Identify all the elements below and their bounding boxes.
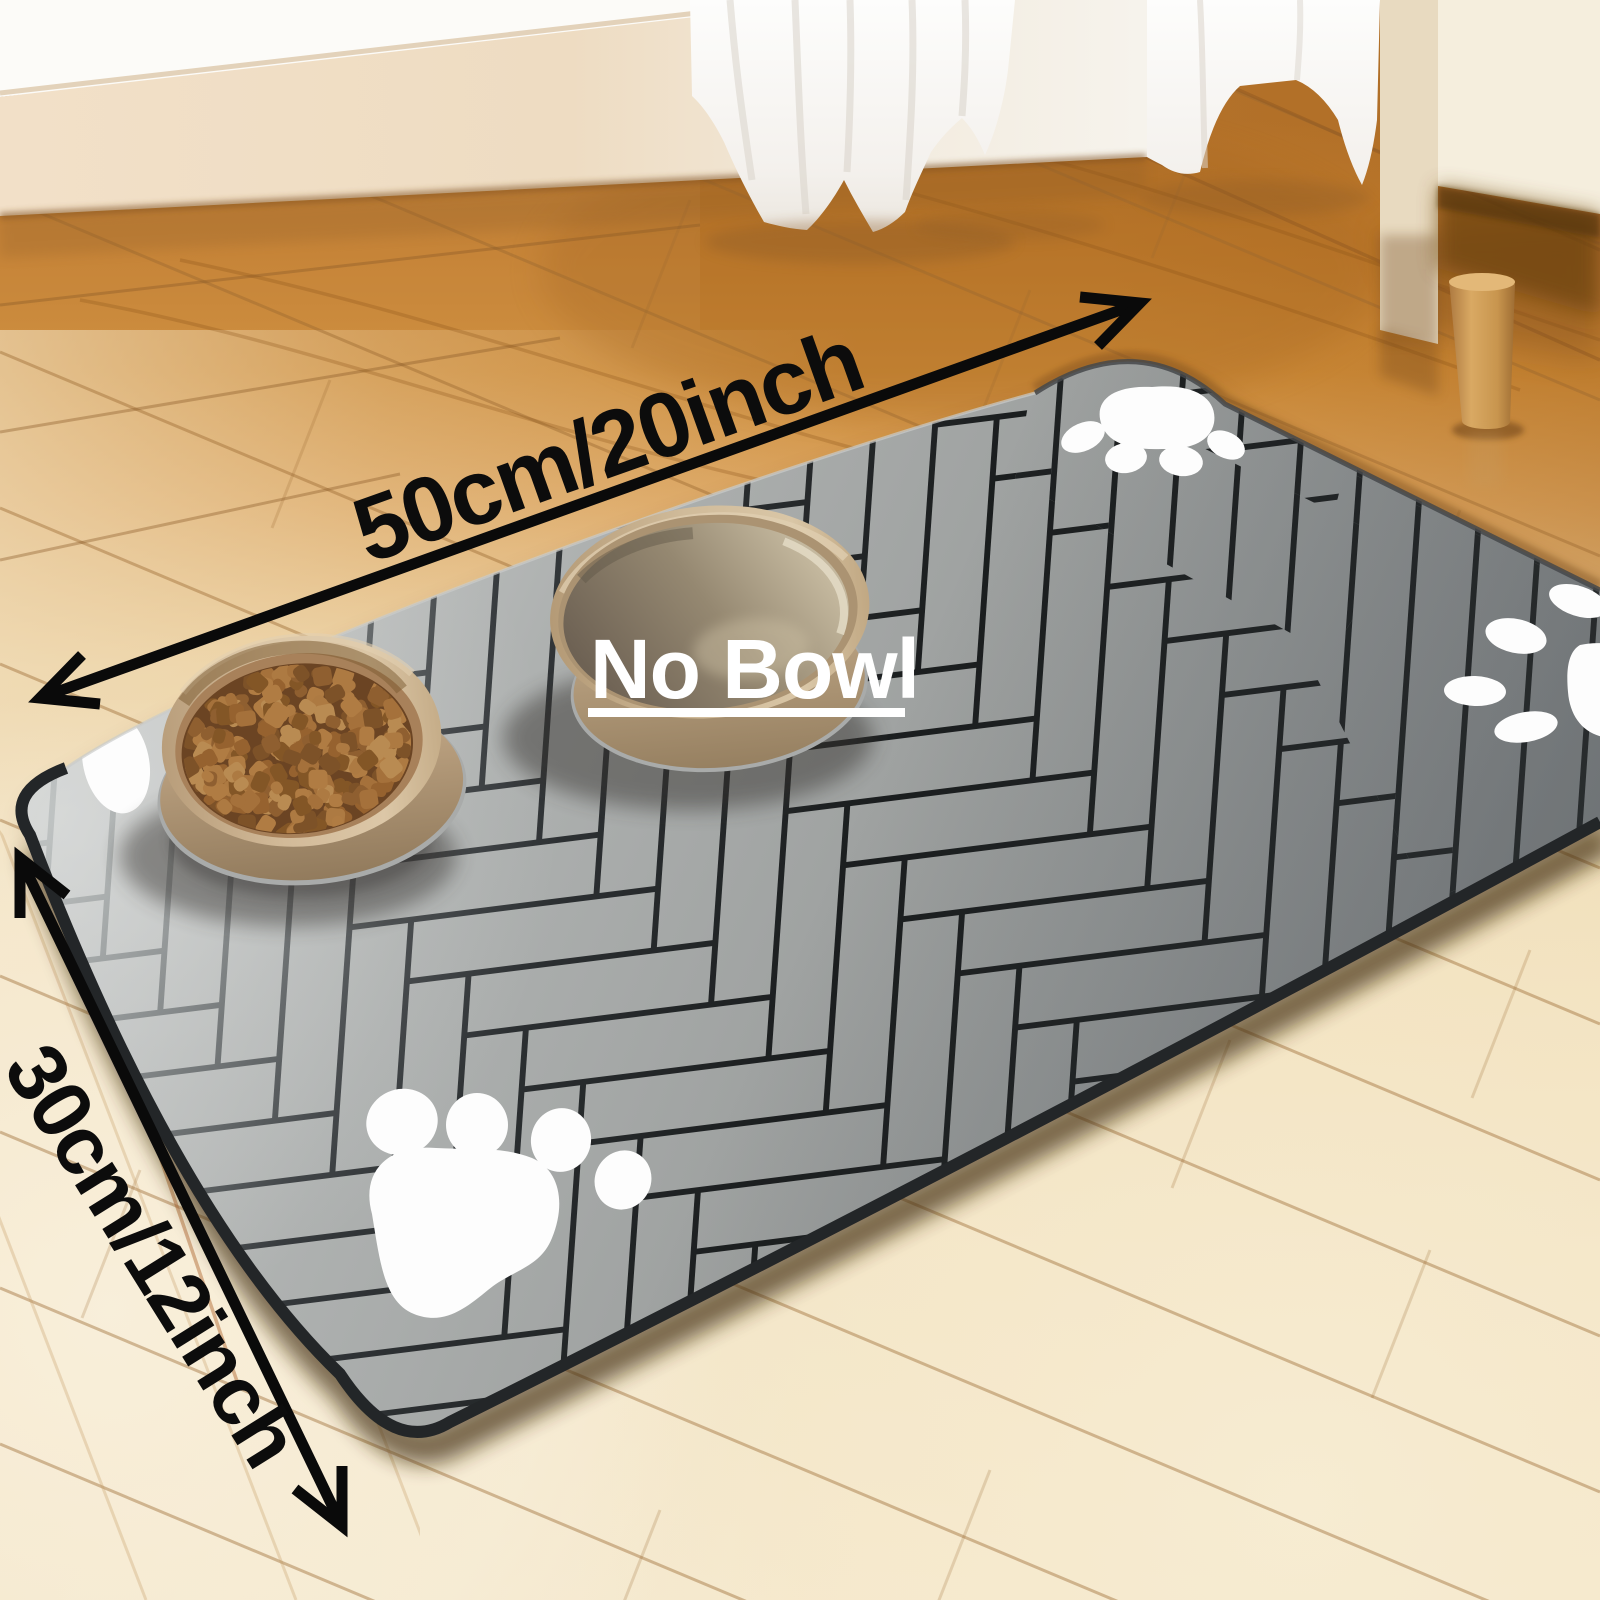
svg-text:No Bowl: No Bowl: [590, 622, 919, 716]
